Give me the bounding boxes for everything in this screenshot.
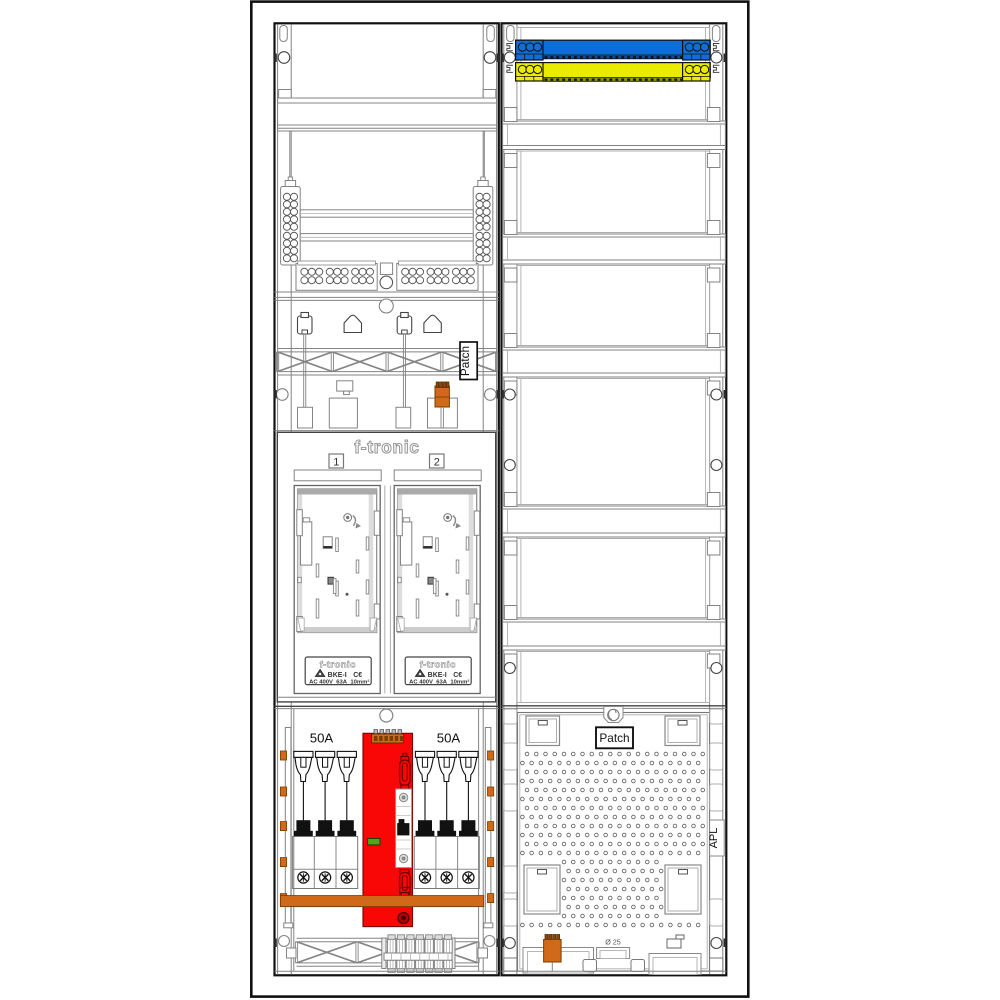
svg-text:2: 2 — [434, 456, 440, 468]
svg-text:f-tronic: f-tronic — [320, 659, 357, 670]
svg-text:AC 400V 63A 10mm²: AC 400V 63A 10mm² — [409, 678, 469, 685]
svg-text:Ø 25: Ø 25 — [605, 938, 621, 947]
svg-text:AC 400V 63A 10mm²: AC 400V 63A 10mm² — [309, 678, 369, 685]
svg-text:APL: APL — [708, 828, 720, 849]
svg-text:Patch: Patch — [458, 346, 472, 376]
svg-text:BKE-I: BKE-I — [428, 672, 447, 679]
svg-text:f-tronic: f-tronic — [420, 659, 457, 670]
svg-text:C€: C€ — [453, 672, 462, 679]
svg-text:C€: C€ — [353, 672, 362, 679]
svg-text:BKE-I: BKE-I — [328, 672, 347, 679]
svg-text:Patch: Patch — [599, 731, 629, 745]
svg-text:50A: 50A — [310, 731, 334, 746]
svg-text:f-tronic: f-tronic — [354, 437, 420, 457]
svg-text:50A: 50A — [437, 731, 461, 746]
svg-text:1: 1 — [333, 456, 339, 468]
